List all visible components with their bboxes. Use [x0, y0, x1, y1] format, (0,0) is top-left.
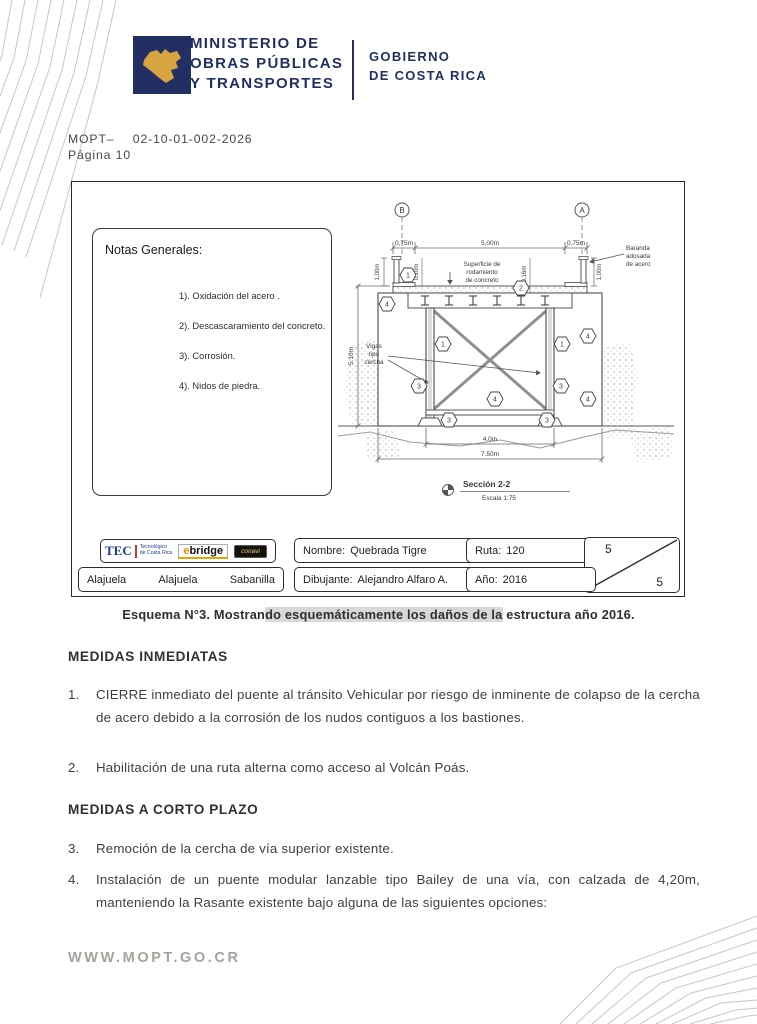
svg-text:4: 4: [385, 302, 389, 309]
svg-text:cercha: cercha: [365, 359, 384, 366]
svg-text:1: 1: [406, 273, 410, 280]
svg-text:de acero: de acero: [626, 261, 651, 268]
schematic-frame: Notas Generales: 1). Oxidación del acero…: [71, 181, 685, 597]
sheet-total: 5: [656, 575, 663, 589]
government-line-2: DE COSTA RICA: [369, 66, 487, 85]
svg-text:4: 4: [493, 397, 497, 404]
svg-text:Baranda: Baranda: [626, 245, 650, 252]
draftsman-cell: Dibujante: Alejandro Alfaro A.: [294, 567, 480, 592]
dim-pavement: 0,16m: [522, 266, 528, 283]
damage-marker-1b: 1: [435, 337, 451, 351]
item-text: Remoción de la cercha de vía superior ex…: [96, 838, 700, 861]
route-value: 120: [506, 545, 524, 557]
year-label: Año:: [475, 574, 498, 586]
section-label: Sección 2-2 Escala 1:75: [443, 479, 571, 502]
svg-text:3: 3: [447, 418, 451, 425]
ebridge-logo: ebridge: [178, 544, 228, 559]
route-label: Ruta:: [475, 545, 501, 557]
item-text: CIERRE inmediato del puente al tránsito …: [96, 684, 700, 729]
general-notes-box: Notas Generales: 1). Oxidación del acero…: [92, 228, 332, 496]
title-block: TEC Tecnológico de Costa Rica ebridge co…: [72, 537, 684, 595]
damage-marker-4b: 4: [580, 329, 596, 343]
item-number: 4.: [68, 869, 96, 914]
svg-text:4: 4: [586, 334, 590, 341]
note-item-1: 1). Oxidación del acero .: [179, 291, 280, 301]
notes-title: Notas Generales:: [105, 243, 202, 257]
locations-cell: Alajuela Alajuela Sabanilla: [78, 567, 284, 592]
svg-text:2: 2: [519, 286, 523, 293]
damage-marker-3d: 3: [539, 413, 555, 427]
heading-medidas-corto-plazo: MEDIDAS A CORTO PLAZO: [68, 802, 258, 817]
document-page: { "header": { "ministry_lines": ["MINIST…: [0, 0, 757, 1024]
doc-ref-prefix: MOPT–: [68, 132, 114, 146]
draftsman-value: Alejandro Alfaro A.: [358, 574, 449, 586]
floor-beam-strip: [408, 293, 572, 308]
header-divider: [352, 40, 354, 100]
item-text: Habilitación de una ruta alterna como ac…: [96, 757, 700, 780]
logo-background: [133, 36, 191, 94]
tec-logo-bar: [135, 545, 137, 558]
item-number: 1.: [68, 684, 96, 729]
dim-rail-left: 1,00m: [375, 264, 381, 281]
svg-text:A: A: [579, 206, 585, 215]
logos-cell: TEC Tecnológico de Costa Rica ebridge co…: [100, 539, 276, 563]
government-name: GOBIERNO DE COSTA RICA: [369, 47, 487, 85]
svg-text:1: 1: [441, 342, 445, 349]
svg-text:de concreto: de concreto: [466, 277, 499, 284]
svg-text:B: B: [399, 206, 404, 215]
corner-decoration-bottom-right: [530, 908, 757, 1024]
right-railing: [579, 257, 588, 284]
year-value: 2016: [503, 574, 527, 586]
damage-marker-4c: 4: [487, 392, 503, 406]
dim-slab: 0,10m: [414, 264, 420, 281]
page-number-label: Página 10: [68, 148, 131, 162]
damage-marker-3c: 3: [441, 413, 457, 427]
ministry-line-1: MINISTERIO DE: [190, 34, 343, 54]
deck-slab: [393, 286, 587, 293]
dim-height: 5.10m: [348, 347, 355, 365]
svg-text:adosada: adosada: [626, 253, 651, 260]
sheet-diagonal-line: [585, 538, 679, 592]
tec-logo-subtitle: Tecnológico de Costa Rica: [140, 545, 173, 557]
tec-logo: TEC: [105, 543, 132, 559]
year-cell: Año: 2016: [466, 567, 596, 592]
svg-text:3: 3: [559, 384, 563, 391]
svg-text:tipo: tipo: [369, 351, 380, 358]
damage-marker-3: 3: [411, 379, 427, 393]
surface-note: Superficie de rodamiento de concreto: [450, 261, 501, 284]
doc-ref-number: 02-10-01-002-2026: [133, 132, 253, 146]
damage-marker-2: 2: [513, 281, 529, 295]
svg-text:3: 3: [417, 384, 421, 391]
sheet-current: 5: [605, 542, 612, 556]
heading-medidas-inmediatas: MEDIDAS INMEDIATAS: [68, 649, 228, 664]
bridge-section-drawing: B A 0,75m 5,00m 0,75m 1,00m 1,00m 0,10m: [330, 196, 682, 532]
dim-total: 7.50m: [481, 451, 499, 458]
bridge-name-label: Nombre:: [303, 545, 345, 557]
note-item-2: 2). Descascaramiento del concreto.: [179, 321, 325, 331]
district: Sabanilla: [230, 574, 275, 586]
document-reference: MOPT– 02-10-01-002-2026: [68, 132, 252, 146]
dim-rail-right: 1,00m: [597, 264, 603, 281]
ministry-line-3: Y TRANSPORTES: [190, 74, 343, 94]
svg-text:Vigas: Vigas: [366, 343, 382, 350]
province: Alajuela: [87, 574, 126, 586]
item-number: 2.: [68, 757, 96, 780]
damage-marker-4d: 4: [580, 392, 596, 406]
route-cell: Ruta: 120: [466, 538, 596, 563]
list-item-2: 2. Habilitación de una ruta alterna como…: [68, 757, 700, 780]
svg-text:rodamiento: rodamiento: [466, 269, 498, 276]
caption-pre: Esquema N°3. Mostran: [122, 607, 265, 622]
dim-curb-right: 0,75m: [567, 240, 585, 247]
partner-logo: conavi: [234, 545, 267, 558]
svg-text:4: 4: [586, 397, 590, 404]
caption-post: estructura año 2016.: [503, 607, 635, 622]
note-item-3: 3). Corrosión.: [179, 351, 235, 361]
damage-marker-3b: 3: [553, 379, 569, 393]
svg-text:3: 3: [545, 418, 549, 425]
list-item-3: 3. Remoción de la cercha de vía superior…: [68, 838, 700, 861]
caption-highlight: do esquemáticamente los daños de la: [265, 607, 502, 622]
draftsman-label: Dibujante:: [303, 574, 353, 586]
bridge-name-cell: Nombre: Quebrada Tigre: [294, 538, 480, 563]
dim-span: 4.0m: [483, 436, 497, 443]
svg-text:Superficie de: Superficie de: [464, 261, 501, 268]
canton: Alajuela: [158, 574, 197, 586]
svg-text:1: 1: [560, 342, 564, 349]
footer-website: WWW.MOPT.GO.CR: [68, 950, 241, 966]
note-item-4: 4). Nidos de piedra.: [179, 381, 260, 391]
damage-marker-4: 4: [379, 297, 395, 311]
left-bearing: [418, 418, 442, 426]
left-railing: [392, 257, 401, 284]
ministry-line-2: OBRAS PÚBLICAS: [190, 54, 343, 74]
government-line-1: GOBIERNO: [369, 47, 487, 66]
damage-marker-1c: 1: [554, 337, 570, 351]
dim-deck-width: 5,00m: [481, 240, 499, 247]
svg-text:Sección 2-2: Sección 2-2: [463, 479, 511, 489]
costa-rica-map-icon: [133, 36, 191, 94]
svg-text:Escala 1:75: Escala 1:75: [482, 495, 516, 502]
dim-curb-left: 0,75m: [395, 240, 413, 247]
figure-caption: Esquema N°3. Mostrando esquemáticamente …: [71, 607, 686, 622]
bridge-name-value: Quebrada Tigre: [350, 545, 426, 557]
ministry-name: MINISTERIO DE OBRAS PÚBLICAS Y TRANSPORT…: [190, 34, 343, 94]
sheet-number-cell: 5 5: [584, 537, 680, 593]
list-item-1: 1. CIERRE inmediato del puente al tránsi…: [68, 684, 700, 729]
item-number: 3.: [68, 838, 96, 861]
mopt-logo: [133, 36, 191, 94]
damage-marker-1: 1: [400, 268, 416, 282]
